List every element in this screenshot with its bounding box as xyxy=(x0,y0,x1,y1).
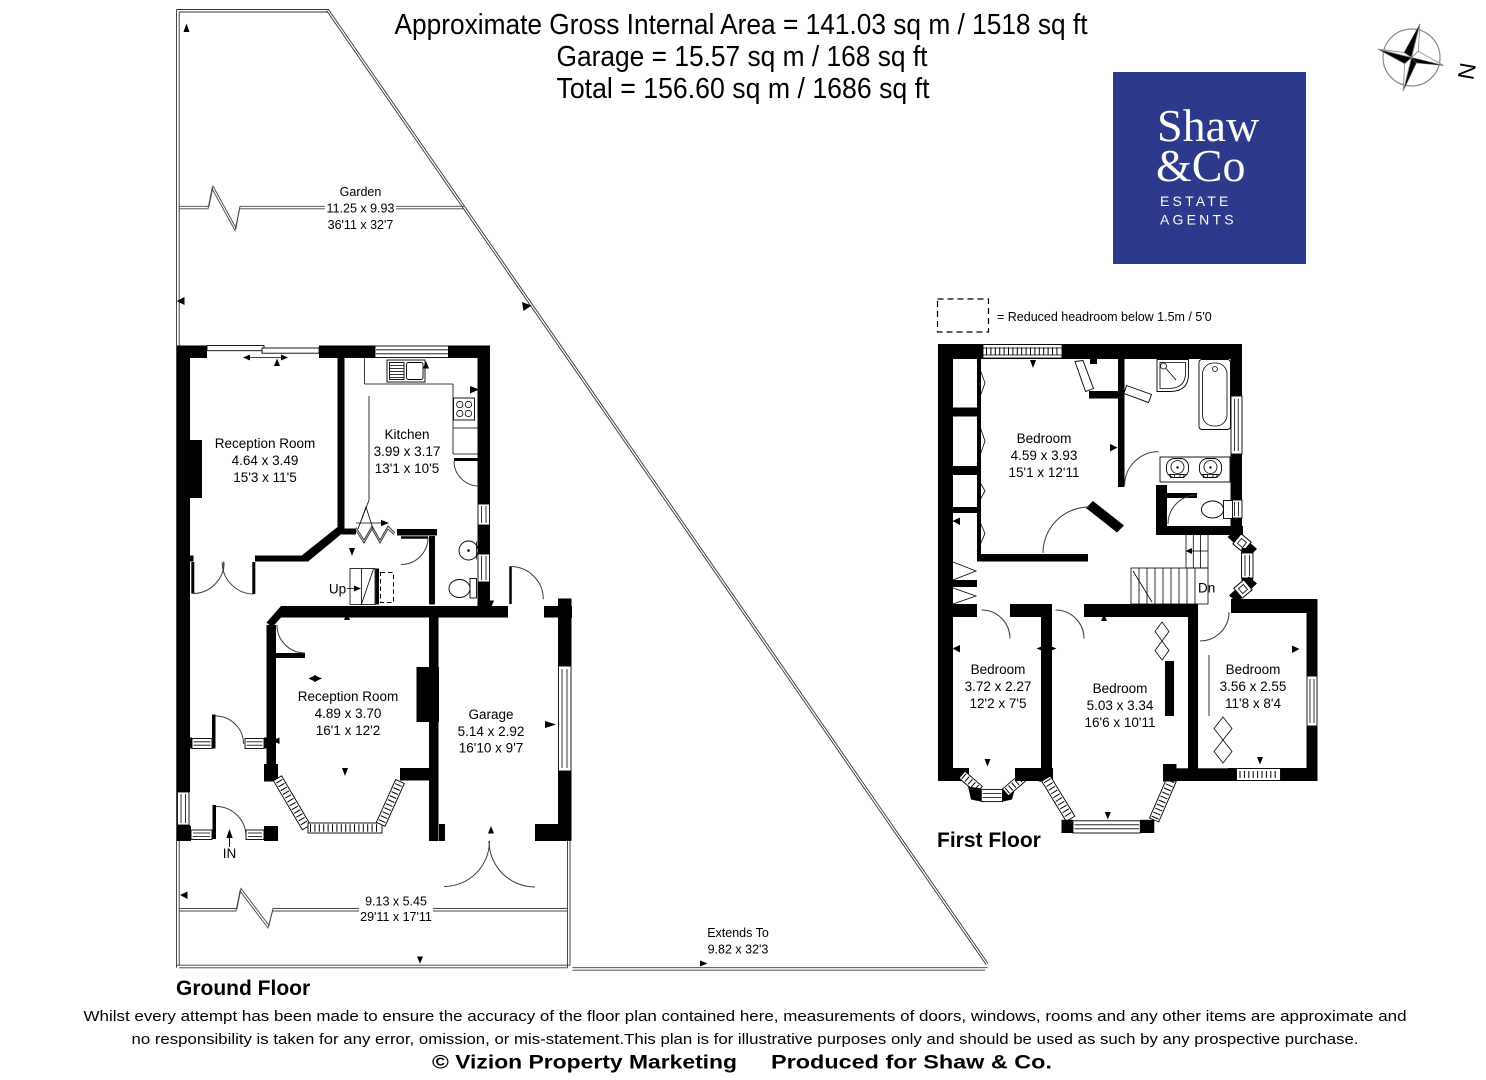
svg-text:&Co: &Co xyxy=(1156,140,1245,191)
svg-text:29'11 x 17'11: 29'11 x 17'11 xyxy=(360,910,432,924)
svg-text:= Reduced headroom below 1.5m: = Reduced headroom below 1.5m / 5'0 xyxy=(997,310,1212,324)
svg-text:16'10 x 9'7: 16'10 x 9'7 xyxy=(459,741,523,756)
svg-text:Garage = 15.57 sq m / 168 sq f: Garage = 15.57 sq m / 168 sq ft xyxy=(557,41,928,73)
svg-text:5.03 x 3.34: 5.03 x 3.34 xyxy=(1087,698,1154,713)
svg-text:4.64 x 3.49: 4.64 x 3.49 xyxy=(232,453,299,468)
svg-text:9.13 x 5.45: 9.13 x 5.45 xyxy=(365,895,427,909)
svg-text:Whilst every attempt has been: Whilst every attempt has been made to en… xyxy=(84,1009,1407,1025)
svg-text:AGENTS: AGENTS xyxy=(1160,212,1237,228)
svg-text:12'2 x 7'5: 12'2 x 7'5 xyxy=(970,696,1027,711)
svg-text:36'11 x 32'7: 36'11 x 32'7 xyxy=(328,218,394,232)
svg-text:Garden: Garden xyxy=(340,185,382,199)
svg-text:9.82 x 32'3: 9.82 x 32'3 xyxy=(708,943,769,957)
svg-text:no responsibility is taken for: no responsibility is taken for any error… xyxy=(132,1032,1359,1048)
svg-text:4.59 x 3.93: 4.59 x 3.93 xyxy=(1011,448,1078,463)
svg-text:Reception Room: Reception Room xyxy=(215,436,316,451)
svg-text:First Floor: First Floor xyxy=(937,829,1041,852)
svg-text:© Vizion Property Marketing: © Vizion Property Marketing xyxy=(432,1052,737,1074)
svg-text:Extends To: Extends To xyxy=(707,926,769,940)
svg-text:ESTATE: ESTATE xyxy=(1160,193,1232,209)
svg-text:11'8 x 8'4: 11'8 x 8'4 xyxy=(1225,696,1281,711)
svg-text:Up: Up xyxy=(329,582,346,597)
svg-text:15'3 x 11'5: 15'3 x 11'5 xyxy=(233,470,296,485)
svg-text:11.25 x 9.93: 11.25 x 9.93 xyxy=(327,202,395,216)
svg-text:Reception Room: Reception Room xyxy=(298,689,399,704)
svg-text:Bedroom: Bedroom xyxy=(971,662,1026,677)
svg-text:Dn: Dn xyxy=(1198,581,1215,596)
svg-text:3.99 x 3.17: 3.99 x 3.17 xyxy=(374,444,441,459)
svg-text:Garage: Garage xyxy=(468,707,513,722)
svg-text:3.72 x 2.27: 3.72 x 2.27 xyxy=(965,679,1032,694)
svg-text:Bedroom: Bedroom xyxy=(1093,681,1148,696)
svg-text:Bedroom: Bedroom xyxy=(1226,662,1281,677)
svg-text:13'1 x 10'5: 13'1 x 10'5 xyxy=(375,461,439,476)
svg-text:Produced for Shaw & Co.: Produced for Shaw & Co. xyxy=(771,1052,1052,1074)
svg-text:3.56 x 2.55: 3.56 x 2.55 xyxy=(1220,679,1287,694)
svg-text:Kitchen: Kitchen xyxy=(384,427,429,442)
svg-text:IN: IN xyxy=(223,846,237,861)
svg-text:Ground Floor: Ground Floor xyxy=(176,977,310,1000)
svg-text:Approximate Gross Internal Are: Approximate Gross Internal Area = 141.03… xyxy=(395,9,1088,41)
svg-text:Total = 156.60 sq m / 1686 sq: Total = 156.60 sq m / 1686 sq ft xyxy=(557,73,930,105)
svg-text:4.89 x 3.70: 4.89 x 3.70 xyxy=(315,706,382,721)
svg-text:15'1 x 12'11: 15'1 x 12'11 xyxy=(1009,465,1080,480)
svg-text:16'1 x 12'2: 16'1 x 12'2 xyxy=(316,723,380,738)
svg-text:16'6 x 10'11: 16'6 x 10'11 xyxy=(1085,715,1156,730)
svg-text:Bedroom: Bedroom xyxy=(1017,431,1072,446)
svg-text:5.14 x 2.92: 5.14 x 2.92 xyxy=(458,724,525,739)
